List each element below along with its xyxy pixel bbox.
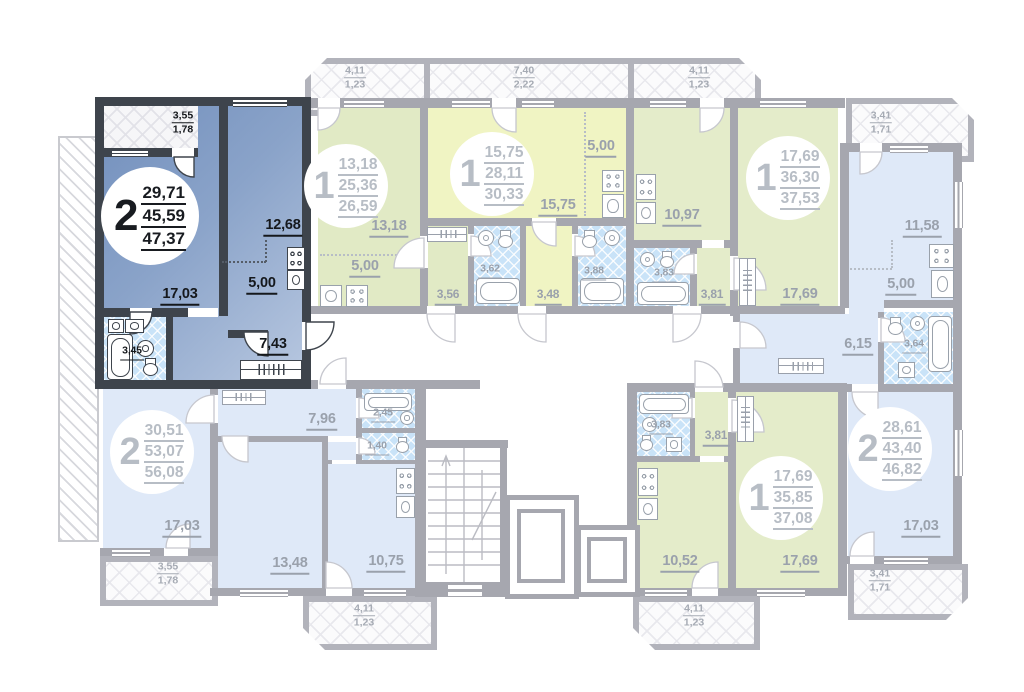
apartment-badge[interactable]: 1 15,75 28,11 30,33 — [450, 132, 534, 216]
closet-icon — [737, 396, 754, 442]
area-label-bath: 3,83 — [652, 266, 676, 283]
balcony-label: 3,55 1,78 — [157, 560, 179, 586]
balcony-area: 4,11 — [688, 64, 710, 78]
stove-icon — [396, 468, 415, 494]
elevator-cabin — [587, 537, 627, 583]
living-area: 17,69 — [780, 147, 821, 168]
balcony-area: 3,55 — [157, 560, 179, 574]
kitchen-sink-icon — [320, 285, 342, 307]
cabinet-icon — [125, 319, 144, 333]
area-label-room: 17,69 — [780, 287, 819, 306]
wardrobe-icon — [222, 390, 266, 405]
apartment-area: 53,07 — [144, 442, 185, 463]
washing-machine-icon — [898, 362, 915, 378]
apartment-badge[interactable]: 1 17,69 35,85 37,08 — [739, 456, 823, 540]
apartment-badge[interactable]: 2 28,61 43,40 46,82 — [848, 407, 932, 491]
apartment-area: 28,11 — [484, 164, 524, 185]
area-label-bath: 3,64 — [902, 337, 926, 354]
area-label-room: 13,48 — [270, 556, 309, 575]
rooms-count: 1 — [314, 167, 335, 205]
balcony-area-reduced: 1,23 — [344, 78, 366, 90]
balcony-area-reduced: 2,22 — [513, 78, 535, 90]
stove-icon — [287, 247, 305, 270]
toilet-icon — [498, 230, 513, 248]
area-label-hall: 6,15 — [842, 337, 873, 356]
sink-icon — [604, 230, 620, 246]
balcony-label: 3,41 1,71 — [870, 109, 892, 135]
total-area: 37,53 — [780, 189, 821, 210]
balcony-area: 7,40 — [513, 64, 535, 78]
area-label-room: 13,18 — [369, 219, 408, 238]
apartment-badge[interactable]: 1 17,69 36,30 37,53 — [746, 136, 830, 220]
washing-machine-icon — [666, 437, 682, 452]
balcony-label: 4,11 1,23 — [353, 602, 375, 628]
wardrobe-icon — [778, 358, 824, 374]
elevator-cabin — [517, 509, 565, 583]
area-label-hall: 7,43 — [257, 337, 288, 356]
bathtub-icon — [928, 316, 952, 372]
apartment-badge[interactable]: 2 30,51 53,07 56,08 — [110, 410, 194, 494]
apartment-area: 43,40 — [882, 439, 923, 460]
balcony-area-reduced: 1,23 — [688, 78, 710, 90]
apartment-area: 35,85 — [773, 488, 814, 509]
toilet-icon — [143, 358, 158, 376]
area-label-room: 17,69 — [780, 554, 819, 573]
wardrobe-icon — [240, 360, 302, 380]
area-label-hall: 3,56 — [435, 287, 462, 306]
balcony-area: 3,41 — [869, 567, 891, 581]
sink-icon — [400, 411, 414, 425]
kitchen-sink-icon — [287, 270, 305, 290]
area-label-kitchen: 5,00 — [349, 259, 380, 278]
stove-icon — [638, 468, 658, 496]
balcony-area-reduced: 1,78 — [172, 123, 194, 135]
bathtub-icon — [476, 278, 520, 304]
stove-icon — [636, 174, 656, 200]
kitchen-sink-icon — [636, 202, 656, 224]
rooms-count: 2 — [114, 194, 138, 238]
apartment-area: 25,36 — [338, 176, 379, 197]
balcony-label: 3,41 1,71 — [869, 567, 891, 593]
living-area: 28,61 — [882, 418, 923, 439]
rooms-count: 1 — [460, 155, 481, 193]
area-label-bath: 3,88 — [582, 264, 606, 281]
total-area: 47,37 — [141, 228, 186, 251]
area-label-bath: 2,45 — [371, 406, 395, 423]
balcony-area: 3,55 — [172, 109, 194, 123]
bathtub-icon — [637, 282, 689, 305]
floor-plan: 2 29,71 45,59 47,37 1 13,18 25,36 26,59 … — [0, 0, 1024, 692]
balcony-area-reduced: 1,23 — [683, 616, 705, 628]
area-label-kitchen-living: 12,68 — [263, 218, 302, 237]
area-label-kitchen: 10,52 — [660, 554, 699, 573]
total-area: 26,59 — [338, 197, 379, 218]
balcony-label: 4,11 1,23 — [688, 64, 710, 90]
sink-icon — [478, 230, 494, 246]
area-label-kitchen-living: 11,58 — [903, 219, 942, 238]
toilet-icon — [888, 317, 903, 335]
area-label-wc: 1,40 — [365, 439, 389, 456]
balcony-label: 4,11 1,23 — [683, 602, 705, 628]
balcony-area-reduced: 1,71 — [870, 123, 892, 135]
balcony-area: 4,11 — [344, 64, 366, 78]
balcony-area-reduced: 1,23 — [353, 616, 375, 628]
area-label-room: 17,03 — [162, 519, 201, 538]
area-label-kitchen: 5,00 — [885, 277, 916, 296]
area-label-room: 15,75 — [538, 198, 577, 217]
kitchen-sink-icon — [638, 498, 658, 520]
stove-icon — [602, 170, 624, 192]
apartment-area: 36,30 — [780, 168, 821, 189]
balcony-area: 4,11 — [683, 602, 705, 616]
total-area: 30,33 — [484, 185, 525, 206]
balcony-label: 7,40 2,22 — [513, 64, 535, 90]
area-label-hall: 3,81 — [699, 287, 726, 306]
area-label-kitchen: 10,97 — [662, 208, 701, 227]
balcony-area-reduced: 1,78 — [157, 574, 179, 586]
area-label-kitchen: 5,00 — [246, 276, 277, 295]
rooms-count: 2 — [858, 430, 879, 468]
toilet-icon — [582, 230, 597, 248]
kitchen-sink-icon — [602, 194, 624, 218]
area-label-hall: 3,81 — [703, 428, 730, 447]
staircase — [428, 448, 500, 582]
living-area: 30,51 — [144, 421, 185, 442]
rooms-count: 1 — [749, 479, 770, 517]
area-label-room: 17,03 — [901, 519, 940, 538]
area-label-kitchen: 10,75 — [366, 554, 405, 573]
bathtub-icon — [639, 394, 689, 414]
balcony-area: 4,11 — [353, 602, 375, 616]
area-label-hall: 7,96 — [306, 412, 337, 431]
apartment-badge[interactable]: 1 13,18 25,36 26,59 — [304, 144, 388, 228]
area-label-bath: 3,45 — [120, 344, 144, 361]
total-area: 56,08 — [144, 463, 185, 484]
stove-icon — [929, 244, 954, 268]
balcony-area-reduced: 1,71 — [869, 581, 891, 593]
toilet-icon — [396, 437, 409, 453]
bathtub-icon — [580, 278, 624, 304]
area-label-kitchen: 5,00 — [585, 139, 616, 158]
area-label-hall: 3,48 — [535, 287, 562, 306]
living-area: 13,18 — [338, 155, 379, 176]
living-area: 29,71 — [141, 182, 186, 205]
apartment-badge-selected[interactable]: 2 29,71 45,59 47,37 — [101, 167, 199, 265]
wardrobe-icon — [427, 227, 467, 242]
apartment-area: 45,59 — [141, 205, 186, 228]
living-area: 15,75 — [484, 143, 525, 164]
living-area: 17,69 — [773, 467, 814, 488]
washing-machine-icon — [108, 319, 124, 333]
rooms-count: 1 — [756, 159, 777, 197]
balcony-label: 4,11 1,23 — [344, 64, 366, 90]
total-area: 37,08 — [773, 509, 814, 530]
kitchen-sink-icon — [931, 270, 954, 298]
stove-icon — [346, 285, 368, 307]
area-label-bath: 3,83 — [649, 418, 673, 435]
area-label-room: 17,03 — [160, 287, 199, 306]
balcony-area: 3,41 — [870, 109, 892, 123]
rooms-count: 2 — [120, 433, 141, 471]
toilet-icon — [640, 435, 653, 451]
area-label-bath: 3,62 — [478, 262, 502, 279]
kitchen-sink-icon — [396, 496, 415, 518]
balcony-label: 3,55 1,78 — [172, 109, 194, 135]
total-area: 46,82 — [882, 460, 923, 481]
closet-icon — [739, 258, 756, 306]
sink-icon — [910, 316, 925, 331]
